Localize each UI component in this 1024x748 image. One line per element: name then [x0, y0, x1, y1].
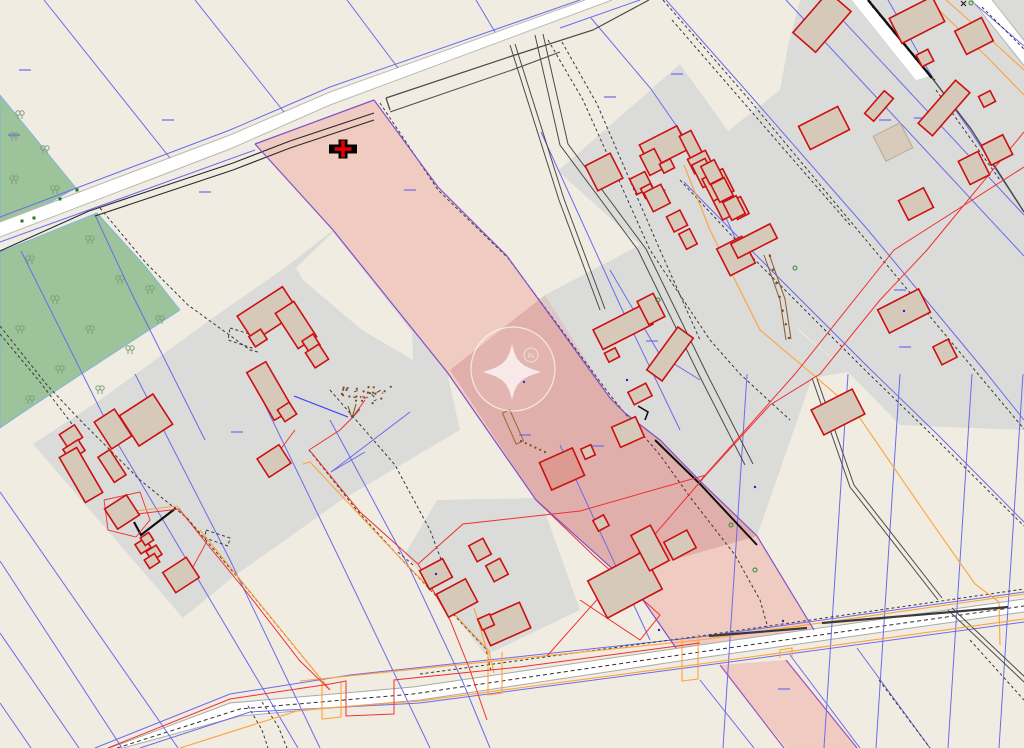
svg-text:Ps: Ps	[527, 354, 534, 360]
